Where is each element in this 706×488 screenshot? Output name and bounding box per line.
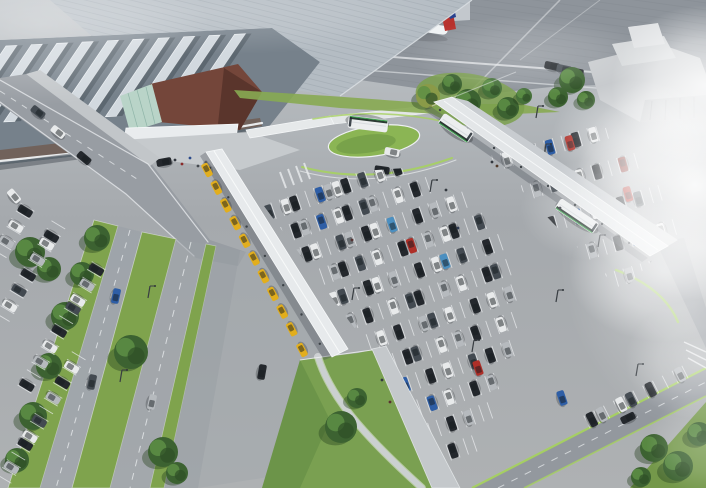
pedestrian [189,157,192,160]
aerial-rendering [0,0,706,488]
pedestrian [197,165,200,168]
canopy-post [300,313,302,315]
pedestrian [389,401,392,404]
pedestrian [457,227,460,230]
pedestrian [174,159,177,162]
pedestrian [181,163,184,166]
canopy-post [264,255,266,257]
screenshot [0,0,706,488]
canopy-post [245,225,247,227]
canopy-post [493,147,495,149]
canopy-post [227,196,229,198]
pedestrian [496,165,499,168]
haze [410,15,650,95]
pedestrian [381,379,384,382]
canopy-post [282,284,284,286]
pedestrian [445,189,448,192]
canopy-post [319,343,321,345]
pedestrian [491,161,494,164]
canopy-post [520,166,522,168]
pedestrian [351,239,354,242]
canopy-post [439,109,441,111]
